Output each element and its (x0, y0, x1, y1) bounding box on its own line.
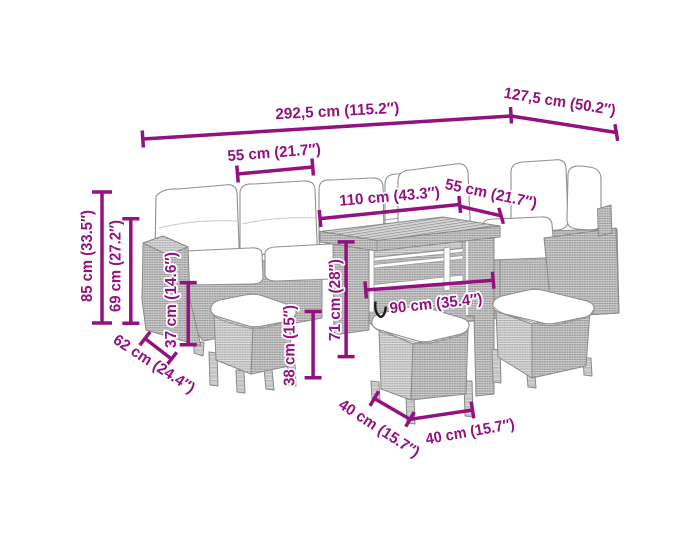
svg-text:69 cm (27.2″): 69 cm (27.2″) (108, 220, 125, 312)
svg-text:37 cm (14.6″): 37 cm (14.6″) (163, 252, 180, 348)
svg-text:55 cm (21.7″): 55 cm (21.7″) (227, 141, 322, 165)
svg-text:40 cm (15.7″): 40 cm (15.7″) (424, 416, 516, 448)
svg-text:38 cm (15″): 38 cm (15″) (282, 305, 299, 386)
svg-text:71 cm (28″): 71 cm (28″) (327, 259, 344, 341)
svg-text:85 cm (33.5″): 85 cm (33.5″) (79, 210, 96, 302)
svg-text:292,5 cm (115.2″): 292,5 cm (115.2″) (275, 100, 400, 123)
svg-text:127,5 cm (50.2″): 127,5 cm (50.2″) (503, 85, 617, 119)
